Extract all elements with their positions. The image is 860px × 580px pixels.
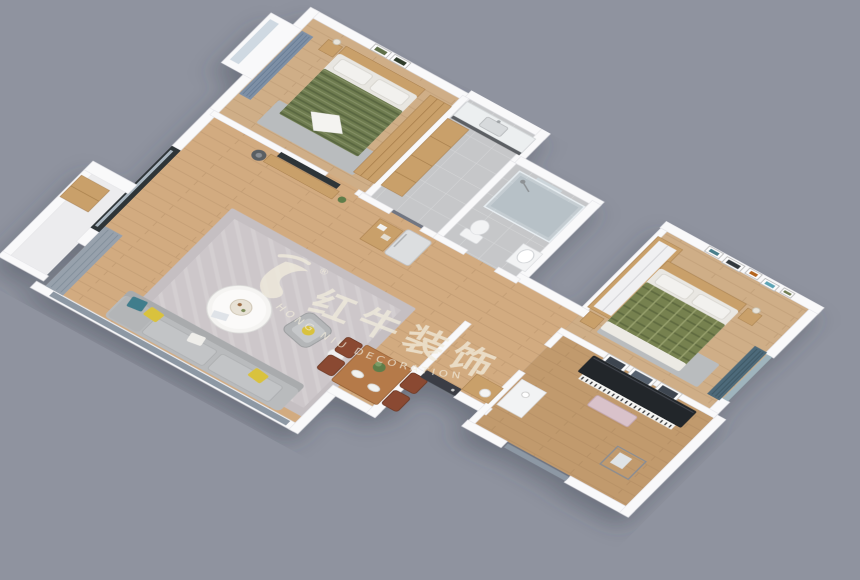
floorplan-svg: ® 红牛装饰 HONG NIU DECORATION — [0, 0, 860, 580]
floorplan-render: ® 红牛装饰 HONG NIU DECORATION — [0, 0, 860, 580]
isometric-plan-container: ® 红牛装饰 HONG NIU DECORATION — [0, 0, 860, 580]
apartment: ® 红牛装饰 HONG NIU DECORATION — [0, 0, 849, 580]
